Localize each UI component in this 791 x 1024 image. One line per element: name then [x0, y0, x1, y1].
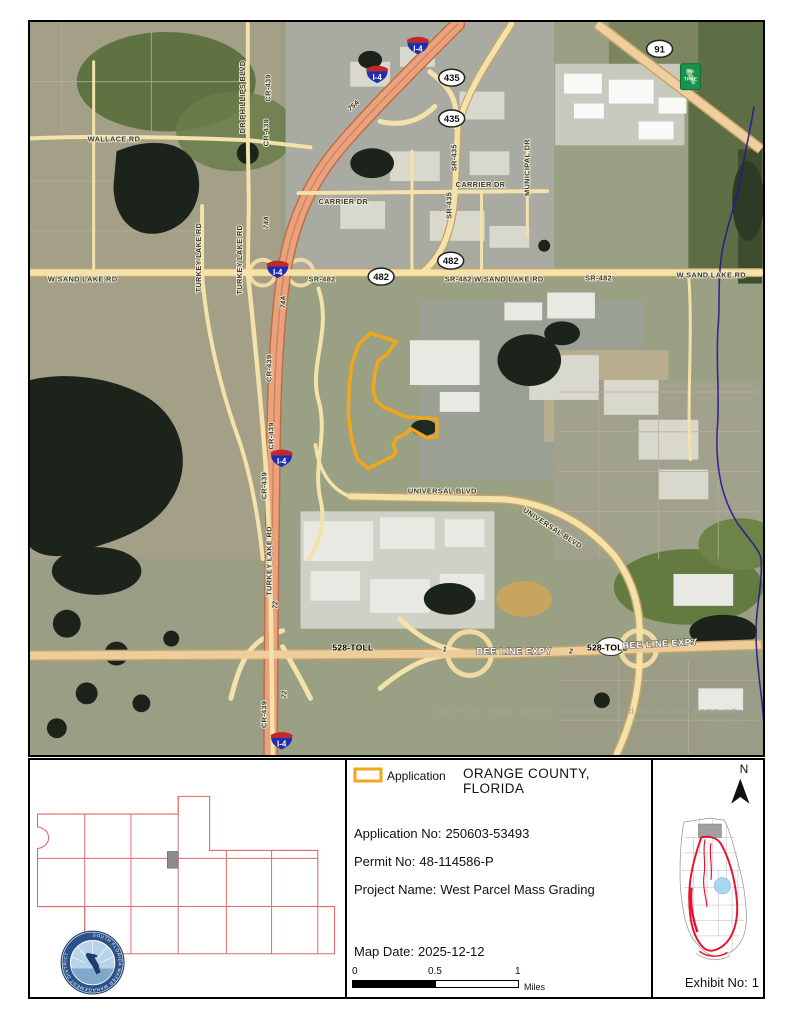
label-turkey-lake: TURKEY LAKE RD	[265, 526, 274, 596]
svg-text:482: 482	[443, 256, 459, 267]
label-72: 72	[282, 690, 289, 698]
svg-text:I-4: I-4	[277, 457, 287, 466]
scale-bar: 0 0.5 1 Miles	[352, 966, 572, 998]
route-482-shield: 482	[368, 268, 394, 285]
exhibit-info-panel: Application ORANGE COUNTY, FLORIDA Appli…	[345, 758, 653, 999]
label-wallace: WALLACE RD	[88, 134, 141, 143]
florida-inset-canvas	[653, 760, 763, 997]
district-grid-canvas: SOUTH FLORIDA WATER MANAGEMENT DISTRICT	[30, 760, 345, 997]
label-cr439: CR-439	[262, 119, 271, 146]
svg-text:TPKE: TPKE	[684, 77, 698, 83]
label-sandlake-e: W SAND LAKE RD	[676, 271, 746, 280]
route-435-shield: 435	[439, 69, 465, 86]
application-legend-swatch	[353, 767, 383, 783]
svg-text:435: 435	[444, 73, 460, 84]
svg-text:I-4: I-4	[372, 73, 382, 82]
label-sr435: SR-435	[445, 192, 454, 219]
label-cr439: CR-439	[260, 701, 269, 728]
label-cr439: CR-439	[260, 472, 269, 499]
location-map: DR PHILLIPS BLVD WALLACE RD CR-439 CR-43…	[28, 20, 765, 757]
permit-no-label: Permit No:	[354, 854, 415, 869]
scale-tick-0: 0	[352, 966, 358, 977]
scale-tick-1: 1	[515, 966, 521, 977]
label-sr482-sandlake: SR-482 W SAND LAKE RD	[445, 275, 544, 284]
map-date-label: Map Date:	[354, 944, 414, 959]
label-sr435: SR-435	[450, 144, 459, 171]
label-ramp2: 2	[689, 640, 694, 647]
label-carrier: CARRIER DR	[456, 180, 506, 189]
label-cr439: CR-439	[265, 355, 274, 382]
route-435-shield: 435	[439, 110, 465, 127]
north-label: N	[733, 762, 755, 776]
florida-map	[680, 818, 747, 960]
map-date-value: 2025-12-12	[418, 944, 485, 959]
svg-text:FL: FL	[687, 69, 693, 75]
application-no-label: Application No:	[354, 826, 441, 841]
label-528-toll: 528-TOLL	[332, 643, 373, 653]
svg-text:91: 91	[654, 44, 665, 55]
label-carrier: CARRIER DR	[318, 197, 368, 206]
map-date-line: Map Date:2025-12-12	[354, 944, 484, 959]
route-91-shield: 91	[647, 40, 673, 57]
label-74a: 74A	[281, 296, 288, 309]
label-sandlake-w: W SAND LAKE RD	[48, 275, 118, 284]
svg-text:NAVTEQ: NAVTEQ	[705, 720, 742, 730]
permit-no-line: Permit No:48-114586-P	[354, 854, 494, 869]
scale-bar-graphic	[352, 980, 519, 988]
project-name-label: Project Name:	[354, 882, 436, 897]
exhibit-no-line: Exhibit No:1	[685, 975, 759, 990]
label-sr482: SR-482	[585, 274, 612, 283]
county-title: ORANGE COUNTY, FLORIDA	[463, 766, 651, 796]
lake-okeechobee	[714, 878, 730, 894]
label-ramp1: 1	[443, 647, 447, 654]
application-no-value: 250603-53493	[445, 826, 529, 841]
label-universal: UNIVERSAL BLVD	[408, 486, 477, 495]
svg-text:435: 435	[444, 114, 460, 125]
aerial-map-canvas: DR PHILLIPS BLVD WALLACE RD CR-439 CR-43…	[30, 22, 763, 755]
scale-tick-half: 0.5	[428, 966, 442, 977]
label-dr-phillips: DR PHILLIPS BLVD	[238, 60, 247, 133]
application-legend-label: Application	[387, 769, 446, 783]
svg-text:I-4: I-4	[273, 268, 283, 277]
district-grid-inset: SOUTH FLORIDA WATER MANAGEMENT DISTRICT	[28, 758, 347, 999]
label-cr439: CR-439	[264, 74, 273, 101]
svg-text:482: 482	[373, 272, 389, 283]
route-482-shield: 482	[438, 252, 464, 269]
label-beeline: BEE LINE EXPY	[477, 647, 552, 657]
location-marker	[167, 851, 178, 868]
orange-county-marker	[698, 824, 721, 838]
label-cr439: CR-439	[267, 422, 276, 449]
application-no-line: Application No:250603-53493	[354, 826, 529, 841]
project-name-value: West Parcel Mass Grading	[440, 882, 594, 897]
label-turkey-lake: TURKEY LAKE RD	[194, 222, 203, 292]
sfwmd-logo: SOUTH FLORIDA WATER MANAGEMENT DISTRICT	[61, 931, 124, 994]
exhibit-no-value: 1	[752, 975, 759, 990]
north-arrow-icon	[731, 779, 749, 804]
label-turkey-lake: TURKEY LAKE RD	[235, 224, 244, 294]
permit-no-value: 48-114586-P	[419, 854, 493, 869]
label-ramp2: 2	[568, 649, 573, 656]
grid-lines	[38, 796, 335, 953]
fl-turnpike-shield: FL TPKE	[680, 64, 700, 90]
scale-unit-label: Miles	[524, 982, 545, 992]
project-name-line: Project Name:West Parcel Mass Grading	[354, 882, 595, 897]
exhibit-no-label: Exhibit No:	[685, 975, 748, 990]
florida-inset-panel: N Exhibit No:1	[651, 758, 765, 999]
svg-text:I-4: I-4	[277, 740, 287, 749]
label-72: 72	[273, 601, 280, 609]
label-74a: 74A	[264, 216, 271, 229]
svg-text:Source: Esri, Maxar, Earthstar: Source: Esri, Maxar, Earthstar Geographi…	[432, 706, 742, 716]
svg-text:I-4: I-4	[413, 44, 423, 53]
label-sr482: SR-482	[308, 275, 335, 284]
label-municipal: MUNICIPAL DR	[522, 139, 531, 196]
